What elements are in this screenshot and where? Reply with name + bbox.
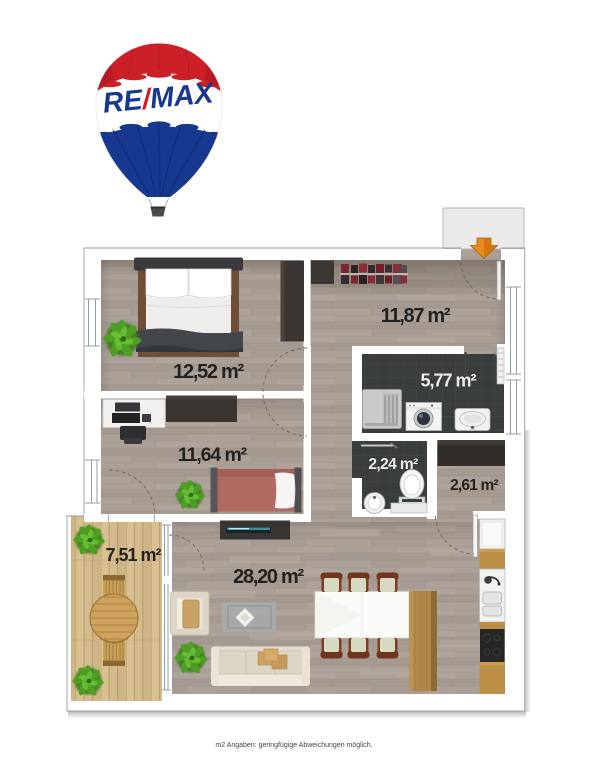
svg-text:11,87 m²: 11,87 m² [381,305,451,327]
svg-text:28,20 m²: 28,20 m² [233,566,304,588]
svg-text:2,61 m²: 2,61 m² [450,477,498,494]
svg-text:7,51 m²: 7,51 m² [105,545,161,565]
svg-text:2,24 m²: 2,24 m² [368,456,418,473]
svg-text:11,64 m²: 11,64 m² [178,444,248,466]
svg-text:5,77 m²: 5,77 m² [420,371,476,391]
svg-text:m2 Angaben: geringfügige Abwei: m2 Angaben: geringfügige Abweichungen mö… [215,742,372,749]
svg-text:12,52 m²: 12,52 m² [173,361,244,383]
